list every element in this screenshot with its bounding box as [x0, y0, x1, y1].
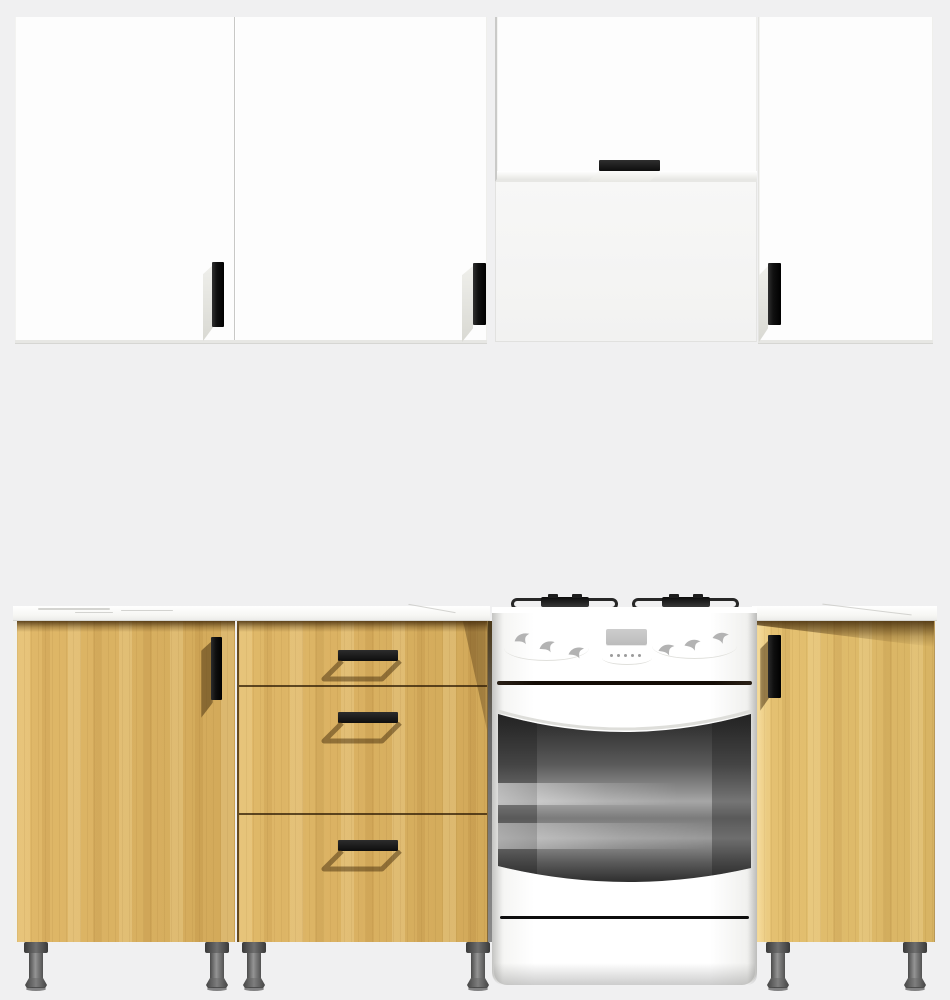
oven-window [495, 695, 754, 887]
marble-vein [121, 610, 173, 611]
kitchen-set-render [0, 0, 950, 1000]
drawer-handle-2 [320, 712, 404, 746]
door-handle-side [462, 266, 473, 342]
marble-vein [408, 604, 455, 613]
counter-shadow [17, 621, 235, 632]
drawer-handle-3 [320, 840, 404, 874]
door-handle [211, 637, 222, 700]
base-drawer-unit [237, 621, 488, 942]
control-knob [512, 629, 534, 651]
display-buttons [610, 654, 641, 657]
marble-vein [38, 608, 110, 610]
adjustable-leg [466, 942, 490, 990]
adjustable-leg [766, 942, 790, 990]
cooker [492, 578, 757, 985]
control-knob [567, 644, 587, 664]
drawer-divider [239, 685, 487, 687]
door-handle [768, 263, 781, 325]
adjustable-leg [205, 942, 229, 990]
drawer-divider [239, 813, 487, 815]
adjustable-leg [24, 942, 48, 990]
countertop-left [13, 606, 490, 621]
recess-panel [495, 182, 757, 342]
upper-cabinet-middle-flipup [495, 17, 757, 182]
door-handle-side [759, 266, 768, 342]
base-cabinet-left [13, 621, 235, 942]
drawer-handle-1 [320, 650, 404, 684]
countertop-right [752, 606, 937, 621]
door-divider [234, 17, 235, 340]
door-handle [473, 263, 486, 325]
door-handle [768, 635, 781, 698]
burner-cap [541, 597, 589, 607]
counter-shadow [757, 621, 934, 647]
control-knob [537, 637, 558, 658]
cooker-cast-shadow [457, 621, 487, 736]
control-knob [656, 640, 677, 661]
flip-door-handle [599, 160, 660, 171]
upper-cabinet-right [758, 17, 933, 343]
burner-cap [662, 597, 710, 607]
cooktop-lip [492, 607, 757, 613]
marble-vein [822, 604, 911, 616]
storage-drawer-shade [494, 963, 755, 985]
adjustable-leg [242, 942, 266, 990]
marble-vein [75, 612, 113, 613]
cooker-display [606, 629, 647, 645]
control-knob [682, 635, 704, 657]
door-handle [212, 262, 224, 327]
cooker-body [492, 607, 757, 985]
oven-drawer-gap [500, 916, 749, 919]
counter-shadow [239, 621, 487, 632]
upper-cabinet-left [15, 17, 487, 343]
panel-separator [497, 681, 752, 685]
base-door [17, 621, 235, 942]
base-cabinet-right [757, 621, 935, 942]
control-knob [709, 627, 732, 650]
adjustable-leg [903, 942, 927, 990]
